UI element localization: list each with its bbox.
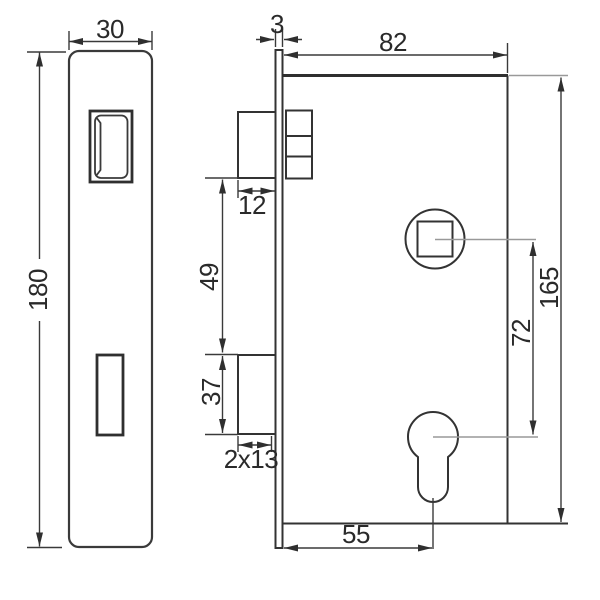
latch-bolt-side (238, 112, 276, 178)
dim-12-extensions (205, 178, 238, 198)
dim-12-label: 12 (238, 190, 266, 220)
deadbolt-cutout (97, 355, 123, 435)
dim-165-label: 165 (534, 267, 564, 309)
dim-latch-to-bolt: 49 (194, 180, 224, 353)
dim-faceplate-height: 180 (23, 52, 66, 548)
dim-82-label: 82 (379, 27, 407, 57)
dim-case-depth: 82 (284, 27, 508, 73)
faceplate-front-view (69, 51, 152, 547)
dim-follower-to-cylinder: 72 (506, 242, 536, 435)
latch-tail-block (286, 111, 312, 179)
lock-dimension-drawing: 30 180 3 82 12 49 37 2x13 (0, 0, 600, 600)
dim-55-label: 55 (342, 519, 370, 549)
deadbolt-side (238, 355, 276, 434)
latch-tail-outline (286, 111, 312, 179)
follower-hub (406, 210, 537, 269)
dim-bolt-height: 37 (196, 355, 238, 435)
drawing-canvas: 30 180 3 82 12 49 37 2x13 (0, 0, 600, 600)
dim-case-height: 165 (534, 78, 564, 523)
dim-faceplate-width: 30 (69, 14, 152, 50)
dim-30-label: 30 (96, 14, 124, 44)
dim-latch-width: 12 (205, 178, 275, 220)
dim-faceplate-thickness: 3 (256, 9, 302, 47)
dim-49-label: 49 (194, 263, 224, 291)
latch-cutout (90, 111, 132, 182)
dim-2x13-label: 2x13 (224, 444, 278, 474)
euro-profile-outline (408, 412, 458, 502)
euro-cylinder-hole (408, 412, 538, 549)
dim-37-label: 37 (196, 378, 226, 406)
latch-cutout-frame (90, 111, 132, 182)
dim-3-label: 3 (270, 9, 284, 39)
dim-72-label: 72 (506, 319, 536, 347)
dim-180-label: 180 (23, 269, 53, 311)
dim-bolt-throw: 2x13 (224, 436, 278, 474)
lock-case-view (238, 76, 568, 550)
case-right-bottom-edge (282, 76, 568, 524)
